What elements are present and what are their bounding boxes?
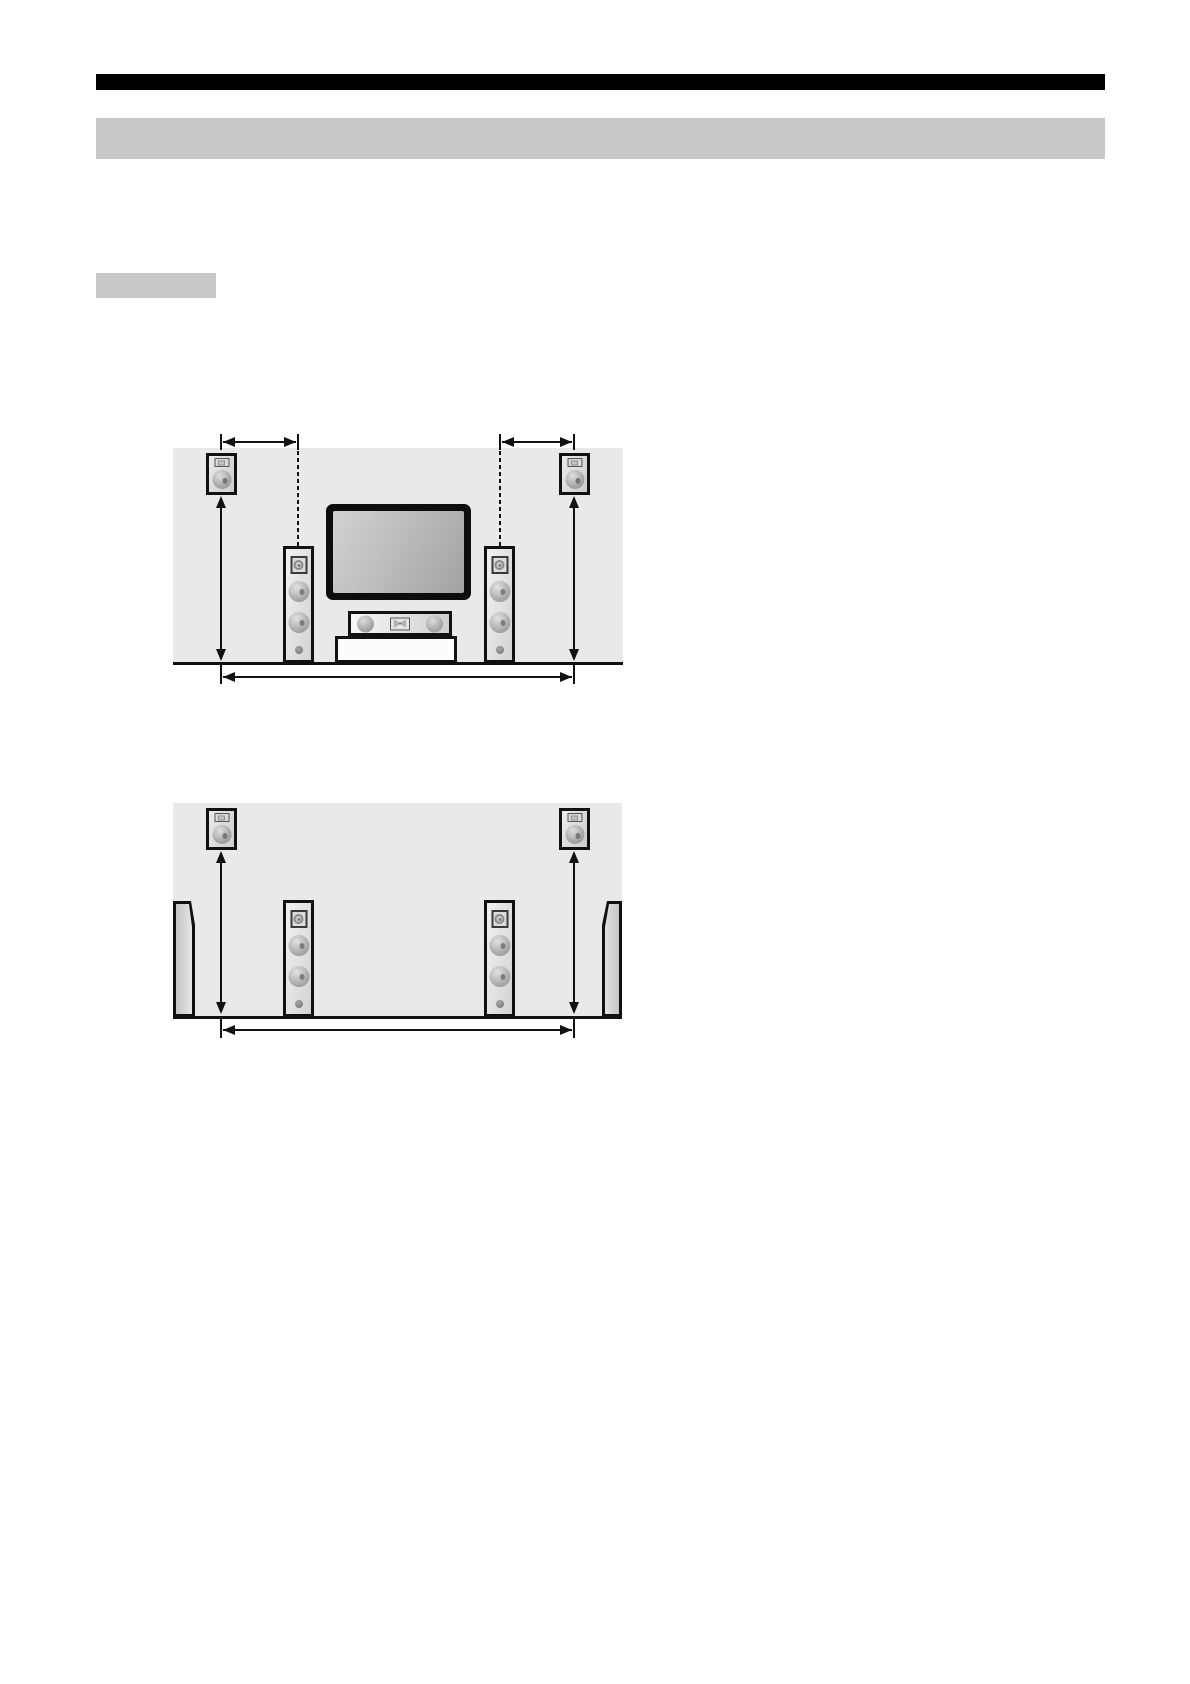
- woofer-icon: [357, 615, 374, 632]
- height-arrow-left-line: [220, 853, 222, 1012]
- center-speaker: [348, 611, 452, 636]
- woofer-icon: [212, 825, 231, 844]
- woofer-icon: [489, 612, 510, 633]
- bottom-tick-left: [220, 1016, 222, 1038]
- woofer-icon: [288, 581, 309, 602]
- floor-line: [173, 1016, 622, 1019]
- dimension-tick: [220, 434, 222, 450]
- subsection-label-box: [96, 273, 216, 298]
- bottom-width-arrow-line: [223, 676, 572, 678]
- bottom-tick-right: [573, 662, 575, 684]
- tweeter-icon: [567, 458, 582, 467]
- arrowhead-right-icon: [560, 1025, 572, 1035]
- arrowhead-down-icon: [569, 1002, 579, 1014]
- emblem-icon: [390, 617, 410, 630]
- tweeter-icon: [214, 458, 229, 467]
- arrowhead-down-icon: [569, 649, 579, 661]
- height-arrow-left-line: [220, 498, 222, 659]
- arrowhead-up-icon: [569, 496, 579, 508]
- arrowhead-down-icon: [216, 649, 226, 661]
- bottom-tick-right: [573, 1016, 575, 1038]
- height-arrow-right-line: [573, 498, 575, 659]
- bottom-width-arrow-line: [223, 1029, 572, 1031]
- tweeter-ring-icon: [495, 914, 505, 924]
- manual-page: [0, 0, 1190, 1684]
- woofer-icon: [489, 935, 510, 956]
- guide-line-right: [499, 444, 501, 546]
- arrowhead-left-icon: [223, 437, 235, 447]
- guide-line-left: [297, 444, 299, 546]
- arrowhead-right-icon: [284, 437, 296, 447]
- height-arrow-right-line: [573, 853, 575, 1012]
- woofer-icon: [489, 581, 510, 602]
- dimension-tick: [573, 434, 575, 450]
- tweeter-icon: [290, 910, 307, 928]
- bottom-tick-left: [220, 662, 222, 684]
- tweeter-icon: [567, 813, 582, 822]
- port-dot-icon: [295, 1000, 303, 1008]
- tweeter-ring-icon: [294, 914, 304, 924]
- woofer-icon: [288, 966, 309, 987]
- front-tower-speaker-right: [484, 900, 515, 1017]
- surround-speaker-left: [206, 808, 237, 850]
- woofer-icon: [565, 825, 584, 844]
- bowtie-mark-icon: [394, 620, 406, 628]
- tv-stand: [335, 636, 457, 663]
- woofer-icon: [426, 615, 443, 632]
- arrowhead-up-icon: [216, 851, 226, 863]
- woofer-icon: [212, 470, 231, 489]
- tweeter-icon: [290, 556, 307, 574]
- woofer-icon: [489, 966, 510, 987]
- surround-speaker-right: [559, 808, 590, 850]
- surround-speaker-left: [206, 453, 237, 495]
- diagram-panel: [173, 803, 622, 1019]
- tv-display: [326, 504, 471, 600]
- tweeter-icon: [491, 910, 508, 928]
- tweeter-mark-icon: [571, 460, 578, 465]
- wall-segment-left: [173, 901, 195, 1017]
- tweeter-mark-icon: [571, 815, 578, 820]
- tv-screen: [333, 511, 464, 593]
- wall-segment-right: [600, 901, 622, 1017]
- port-dot-icon: [496, 646, 504, 654]
- tweeter-mark-icon: [218, 815, 225, 820]
- tweeter-mark-icon: [218, 460, 225, 465]
- arrowhead-right-icon: [560, 437, 572, 447]
- arrowhead-left-icon: [502, 437, 514, 447]
- surround-speaker-right: [559, 453, 590, 495]
- port-dot-icon: [496, 1000, 504, 1008]
- top-rule-bar: [96, 74, 1105, 90]
- front-tower-speaker-right: [484, 546, 515, 663]
- front-tower-speaker-left: [283, 900, 314, 1017]
- arrowhead-right-icon: [560, 672, 572, 682]
- tweeter-ring-icon: [294, 560, 304, 570]
- arrowhead-up-icon: [569, 851, 579, 863]
- front-tower-speaker-left: [283, 546, 314, 663]
- port-dot-icon: [295, 646, 303, 654]
- woofer-icon: [288, 612, 309, 633]
- tweeter-icon: [491, 556, 508, 574]
- section-title-bar: [96, 118, 1105, 159]
- arrowhead-up-icon: [216, 496, 226, 508]
- arrowhead-left-icon: [223, 1025, 235, 1035]
- woofer-icon: [288, 935, 309, 956]
- woofer-icon: [565, 470, 584, 489]
- tweeter-ring-icon: [495, 560, 505, 570]
- arrowhead-down-icon: [216, 1002, 226, 1014]
- arrowhead-left-icon: [223, 672, 235, 682]
- tweeter-icon: [214, 813, 229, 822]
